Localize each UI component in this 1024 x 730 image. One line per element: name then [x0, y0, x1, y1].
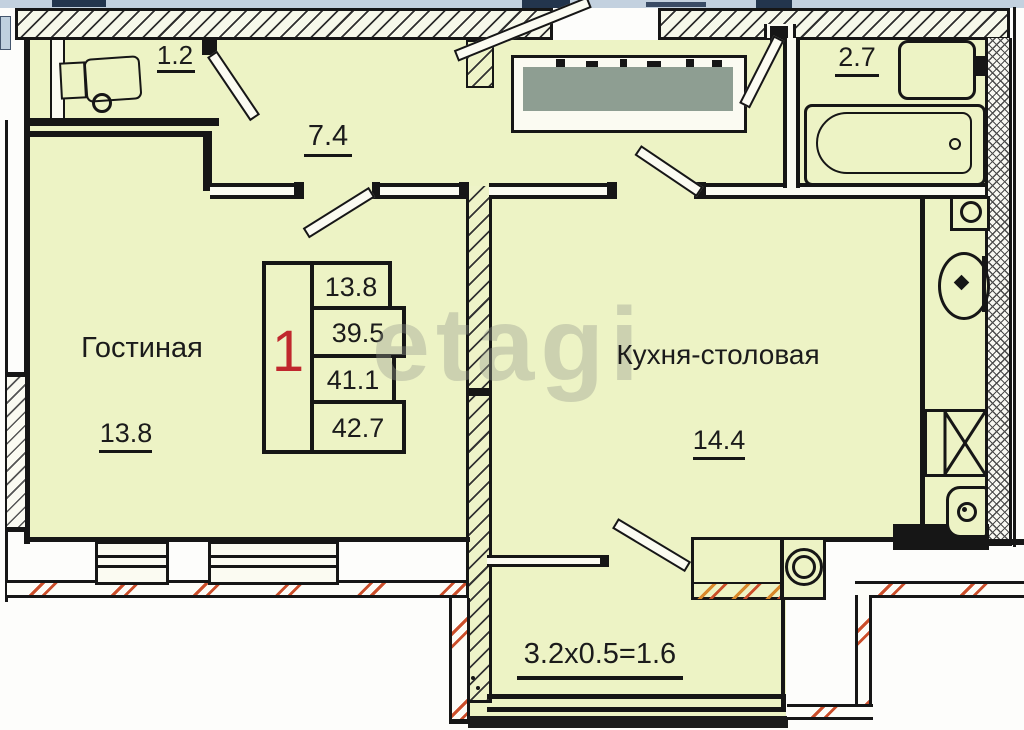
- bathtub-drain-icon: [949, 138, 961, 150]
- exterior-wall-top-left: [15, 8, 553, 40]
- wall-end-cap: [607, 182, 617, 199]
- floor-plan: 1 13.8 39.5 41.1 42.7 1.2 7.4 2.7 Гостин…: [0, 0, 1024, 730]
- wall-step-vertical: [203, 131, 212, 191]
- window-glazing-line: [211, 565, 336, 568]
- balcony-left-wall-cap: [449, 719, 470, 724]
- top-crop-segment: [646, 2, 706, 7]
- redacted-text-fragment: [647, 61, 661, 67]
- appliance-knob-icon: [957, 502, 977, 522]
- basin-wall-line: [982, 256, 986, 312]
- column-dot: [476, 686, 480, 690]
- wall-end-cap: [294, 182, 304, 199]
- top-crop-segment: [52, 0, 106, 7]
- counter-divider: [780, 540, 784, 597]
- balcony-railing: [487, 555, 601, 567]
- left-crop-fragment: [0, 16, 11, 50]
- wall-hall-kitchen: [489, 183, 609, 199]
- living-room-area-label: 13.8: [97, 418, 155, 449]
- balcony-dimension-underline: [517, 676, 683, 680]
- wall-end-cap: [459, 182, 469, 199]
- kitchen-bottom-line: [824, 537, 900, 542]
- balcony-bottom-crop-band: [468, 716, 788, 728]
- redacted-text-fragment: [686, 59, 694, 67]
- top-crop-strip: [0, 0, 1024, 8]
- balcony-window-line: [487, 707, 786, 712]
- living-room-area-underline: [99, 450, 152, 453]
- kitchen-area-underline: [693, 457, 745, 460]
- window-glazing-line: [98, 565, 166, 568]
- balcony-right-line: [781, 598, 785, 698]
- stamp-area-value: 42.7: [314, 413, 402, 444]
- bathroom-area-label: 2.7: [831, 42, 883, 73]
- window-living-1: [95, 541, 169, 585]
- kitchen-cabinet-front-line: [920, 196, 925, 528]
- redaction-overlay: [523, 67, 733, 111]
- exterior-lwall-bottom: [787, 704, 873, 720]
- kitchen-counter: [691, 537, 826, 600]
- counter-hatch-strip: [694, 582, 780, 599]
- stove-icon: [924, 409, 988, 477]
- redacted-text-fragment: [712, 60, 722, 67]
- wall-hall-living-2: [372, 183, 462, 199]
- wall-bathroom-left: [783, 38, 800, 188]
- kitchen-bottom-thin-line: [987, 539, 1024, 545]
- balcony-railing-cap: [600, 555, 609, 567]
- peephole-circle-icon: [92, 93, 112, 113]
- kitchen-name-label: Кухня-столовая: [596, 339, 840, 371]
- stove-burner-cross: [927, 412, 985, 474]
- redacted-text-fragment: [556, 59, 565, 67]
- vent-circle-icon: [960, 201, 982, 223]
- bathroom-area-underline: [835, 74, 879, 77]
- balcony-window-line: [487, 694, 786, 699]
- exterior-lwall-vertical: [855, 595, 872, 713]
- column-dot: [471, 676, 475, 680]
- wall-closet-bottom: [28, 118, 219, 126]
- living-room-name-label: Гостиная: [58, 332, 226, 365]
- exterior-edge-line-right: [1013, 7, 1016, 547]
- wall-closet-bottom-inner: [28, 131, 208, 137]
- window-living-2: [208, 541, 339, 585]
- redacted-text-fragment: [620, 59, 627, 67]
- hallway-area-underline: [304, 154, 352, 157]
- wall-pier-left: [7, 372, 25, 532]
- balcony-dimension-label: 3.2x0.5=1.6: [512, 638, 688, 671]
- top-crop-segment: [756, 0, 792, 8]
- redacted-text-fragment: [586, 61, 598, 67]
- window-glazing-line: [98, 555, 166, 558]
- window-glazing-line: [211, 555, 336, 558]
- wall-hall-living: [210, 183, 304, 199]
- exterior-lwall-top: [855, 581, 1024, 598]
- appliance-knob-dot: [962, 507, 967, 512]
- closet-area-underline: [157, 70, 195, 73]
- bathroom-sink-icon: [898, 40, 976, 100]
- stamp-apartment-number: 1: [266, 323, 310, 381]
- closet-area-label: 1.2: [153, 40, 197, 71]
- stamp-number-cell: 1: [262, 261, 314, 454]
- hallway-area-label: 7.4: [299, 120, 357, 153]
- balcony-window-cap: [781, 694, 786, 712]
- balcony-left-wall: [449, 598, 470, 721]
- counter-sink-inner: [792, 555, 816, 579]
- washing-machine-icon: [59, 61, 87, 99]
- stamp-area-cell: 42.7: [310, 400, 406, 454]
- washing-machine-icon: [84, 55, 143, 103]
- kitchen-area-label: 14.4: [690, 425, 748, 456]
- exterior-wall-top-right: [658, 8, 1010, 40]
